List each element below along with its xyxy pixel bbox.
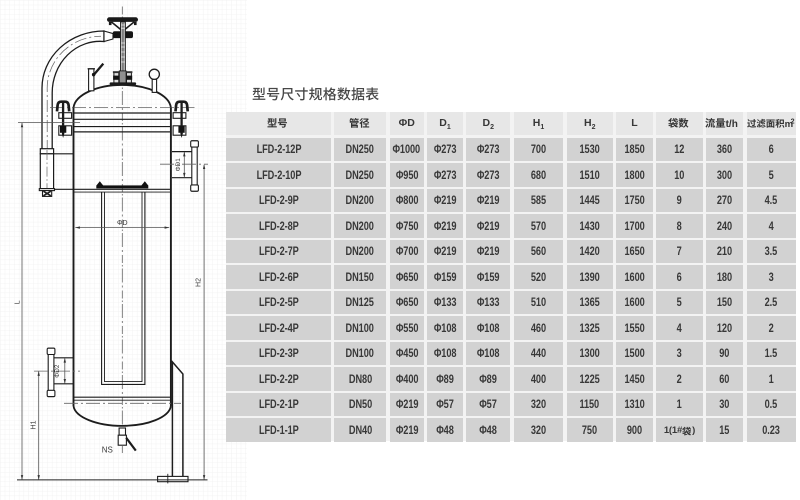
svg-text:H1: H1: [30, 420, 37, 429]
svg-text:NS: NS: [102, 445, 113, 454]
svg-text:2: 2: [790, 117, 794, 125]
svg-text:ΦD1: ΦD1: [175, 158, 182, 172]
svg-text:L: L: [14, 300, 21, 304]
svg-text:t/h: t/h: [725, 119, 737, 130]
svg-text:ΦD2: ΦD2: [54, 364, 61, 378]
svg-text:ΦD: ΦD: [117, 220, 128, 227]
svg-text:H2: H2: [196, 278, 203, 287]
